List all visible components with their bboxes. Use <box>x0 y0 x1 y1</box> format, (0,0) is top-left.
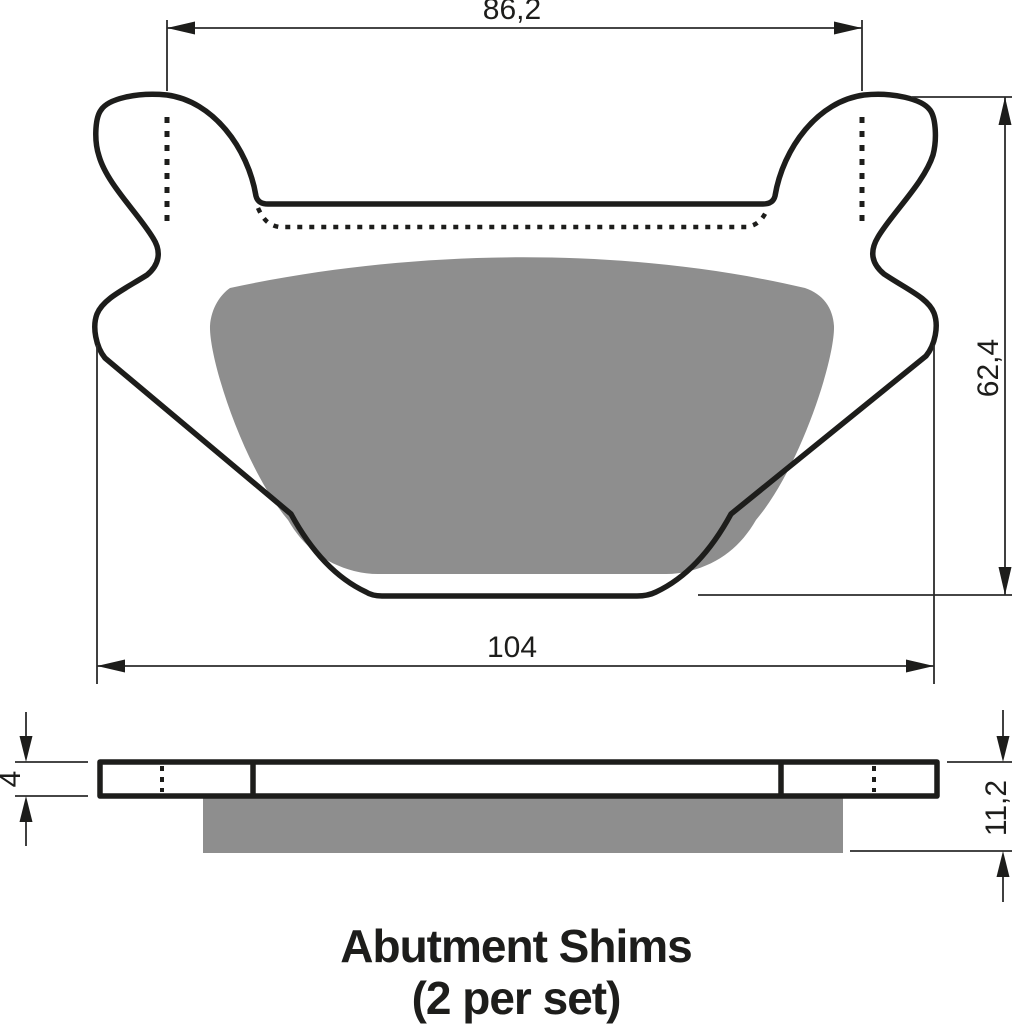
technical-drawing-page: 86,2 62,4 104 <box>0 0 1017 1024</box>
dim-overall-width-arrow-right <box>906 660 934 673</box>
dim-overall-width-label: 104 <box>487 631 537 664</box>
dim-total-arrow-bottom <box>997 851 1010 877</box>
side-backplate <box>100 762 937 796</box>
dim-upper-width-label: 86,2 <box>483 0 541 26</box>
caption-line-1: Abutment Shims <box>340 920 691 972</box>
side-friction-material <box>203 797 843 853</box>
pad-top-view <box>95 94 936 596</box>
dim-height-arrow-bottom <box>999 567 1012 595</box>
dim-total-label: 11,2 <box>980 780 1013 836</box>
dim-upper-width: 86,2 <box>167 0 862 91</box>
pad-side-view <box>100 762 937 853</box>
brake-pad-drawing: 86,2 62,4 104 <box>0 0 1017 1024</box>
dim-upper-width-arrow-left <box>167 22 195 35</box>
dim-overall-width-arrow-left <box>97 660 125 673</box>
dim-total-arrow-top <box>997 736 1010 762</box>
dim-backplate-thickness: 4 <box>0 712 88 846</box>
backplate-outline <box>95 94 936 596</box>
dim-thickness-label: 4 <box>0 771 27 788</box>
dim-height-label: 62,4 <box>972 339 1005 397</box>
caption-line-2: (2 per set) <box>412 972 621 1024</box>
dim-upper-width-arrow-right <box>834 22 862 35</box>
dim-total-thickness: 11,2 <box>850 710 1013 902</box>
caption: Abutment Shims (2 per set) <box>340 920 691 1024</box>
dim-thickness-arrow-bottom <box>20 796 33 822</box>
dim-thickness-arrow-top <box>20 736 33 762</box>
dim-height-arrow-top <box>999 97 1012 125</box>
